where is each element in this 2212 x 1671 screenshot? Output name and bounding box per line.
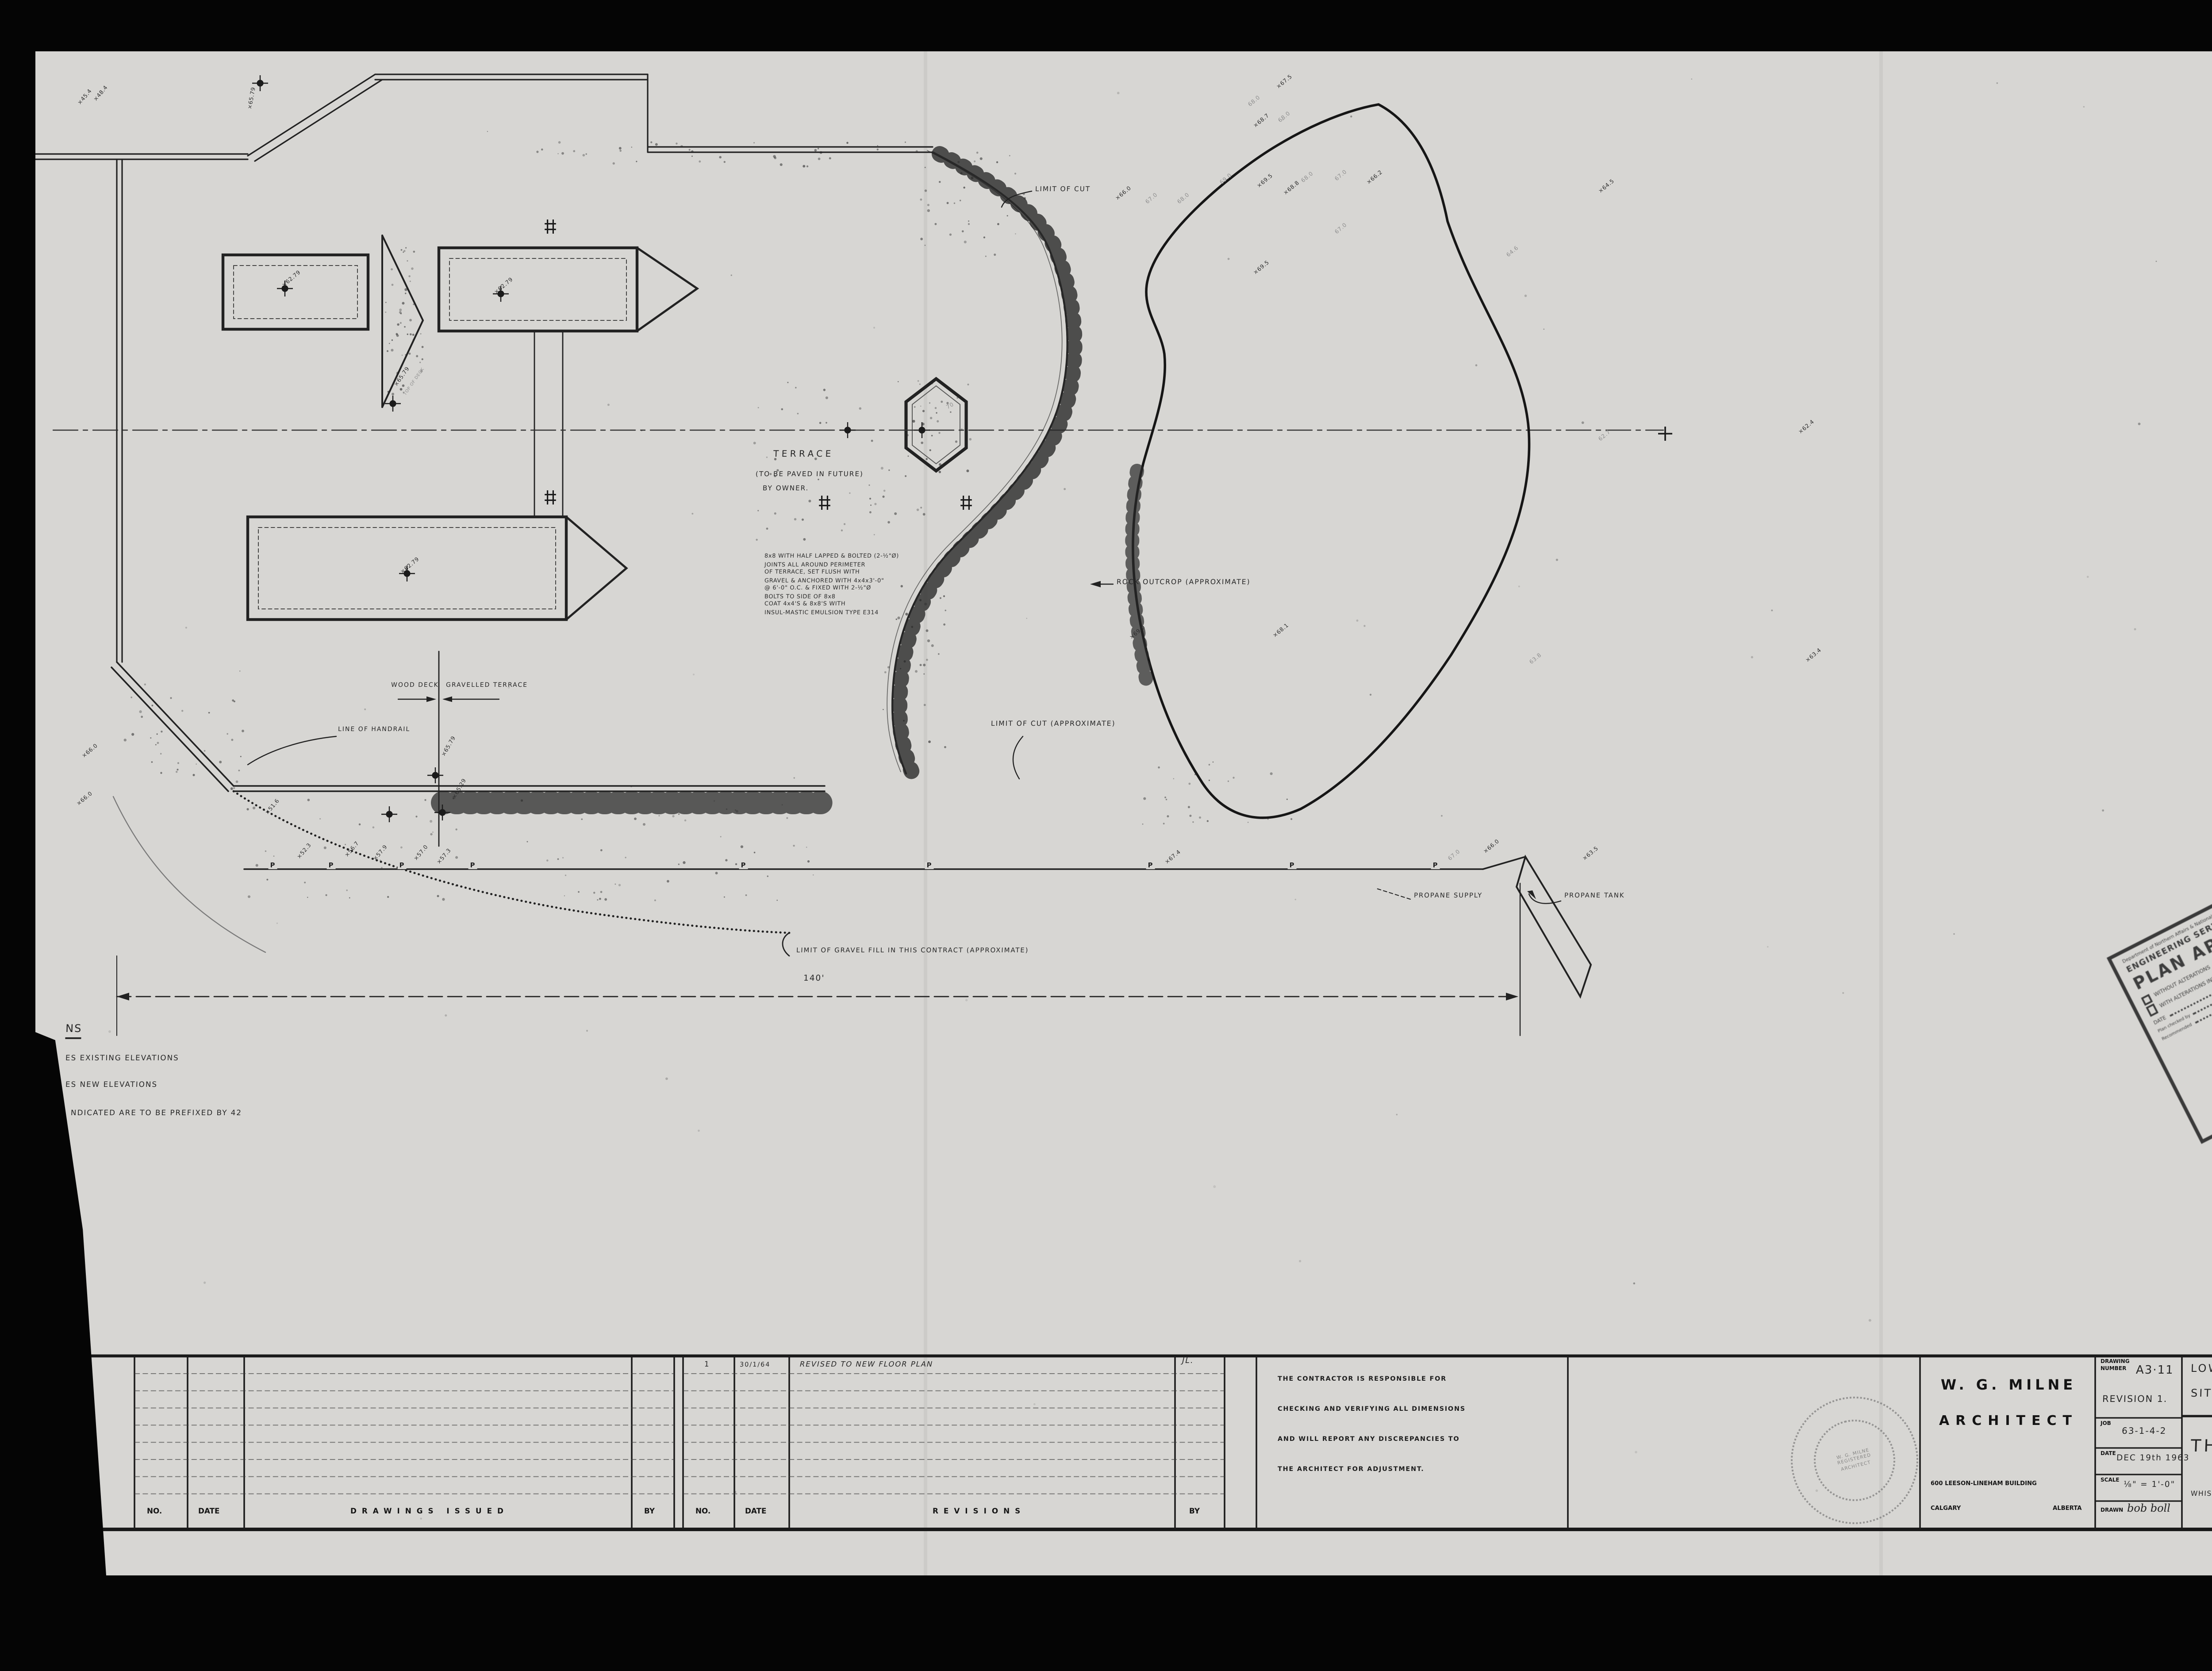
stipple-dot — [634, 817, 637, 820]
stipple-dot — [1228, 258, 1230, 260]
stipple-dot — [767, 875, 768, 877]
stipple-dot — [401, 249, 403, 251]
text-line: JOINTS ALL AROUND PERIMETER — [764, 560, 899, 568]
stipple-dot — [884, 671, 887, 674]
stipple-dot — [676, 142, 677, 144]
checkbox-icon — [2141, 993, 2154, 1005]
stipple-dot — [922, 410, 925, 412]
stipple-dot — [1767, 946, 1769, 948]
stipple-dot — [680, 145, 683, 148]
stipple-dot — [1158, 766, 1160, 769]
stipple-dot — [240, 756, 242, 757]
stipple-dot — [236, 780, 238, 783]
stipple-dot — [745, 894, 747, 896]
propane-line-p-marker: P — [1146, 862, 1155, 870]
stipple-dot — [971, 177, 973, 179]
stipple-dot — [1633, 1282, 1636, 1285]
stipple-dot — [819, 422, 822, 424]
stipple-dot — [432, 832, 433, 832]
drawn-signature: bob boll — [2127, 1503, 2170, 1515]
stipple-dot — [411, 267, 414, 270]
stipple-dot — [665, 1078, 668, 1080]
stipple-dot — [802, 519, 804, 521]
stipple-dot — [939, 463, 941, 466]
stipple-dot — [773, 155, 776, 158]
stipple-dot — [1194, 774, 1196, 775]
stipple-dot — [813, 874, 814, 876]
stipple-dot — [877, 149, 879, 150]
issued-by-header: BY — [644, 1506, 655, 1515]
stipple-dot — [1173, 778, 1175, 779]
stipple-dot — [787, 382, 788, 383]
stipple-dot — [924, 603, 927, 605]
stipple-dot — [936, 412, 937, 413]
text-line: COAT 4x4'S & 8x8'S WITH — [764, 600, 899, 608]
stipple-dot — [181, 710, 183, 712]
stipple-dot — [1582, 421, 1584, 424]
line-of-handrail-label: LINE OF HANDRAIL — [338, 726, 411, 733]
stipple-dot — [407, 334, 408, 335]
rock-outcrop-label: ROCK OUTCROP (APPROXIMATE) — [1117, 577, 1251, 586]
project-title: THE JASPER TRAM — [2190, 1437, 2212, 1457]
stipple-dot — [1192, 821, 1194, 823]
stipple-dot — [996, 161, 998, 163]
stipple-dot — [248, 895, 250, 898]
stipple-dot — [1188, 806, 1190, 808]
stipple-dot — [874, 534, 875, 535]
stipple-dot — [1163, 823, 1165, 824]
stipple-dot — [726, 809, 727, 810]
stipple-dot — [219, 761, 222, 763]
stipple-dot — [1228, 781, 1229, 782]
stipple-dot — [923, 674, 925, 675]
stipple-dot — [803, 538, 806, 541]
text-line: CHECKING AND VERIFYING ALL DIMENSIONS — [1278, 1395, 1466, 1425]
stipple-dot — [826, 397, 828, 399]
stipple-dot — [654, 899, 656, 901]
stipple-dot — [151, 705, 153, 706]
building-wing-c-point — [566, 517, 626, 620]
revisions-no-header: NO. — [695, 1506, 710, 1515]
stipple-dot — [405, 247, 407, 248]
sheet-title-line1: LOWER TERMINAL — [2191, 1363, 2212, 1375]
stipple-dot — [400, 847, 403, 849]
stipple-dot — [437, 895, 439, 897]
stipple-dot — [931, 382, 933, 384]
stipple-dot — [928, 740, 931, 743]
text-line: AND WILL REPORT ANY DISCREPANCIES TO — [1278, 1425, 1466, 1455]
stipple-dot — [422, 346, 424, 348]
gravel-fill-label: LIMIT OF GRAVEL FILL IN THIS CONTRACT (A… — [796, 947, 1029, 954]
stipple-dot — [1213, 1185, 1216, 1188]
stipple-dot — [797, 413, 799, 415]
stipple-dot — [586, 1030, 588, 1032]
stipple-dot — [967, 384, 969, 385]
stipple-dot — [720, 836, 722, 837]
stipple-dot — [204, 750, 206, 752]
stipple-dot — [246, 808, 249, 810]
stipple-dot — [131, 733, 134, 735]
stipple-dot — [776, 900, 778, 901]
stipple-dot — [914, 406, 916, 408]
wood-deck-label: WOOD DECK — [391, 681, 439, 689]
stipple-dot — [786, 817, 788, 819]
stipple-dot — [583, 154, 585, 157]
deck-south-edge — [234, 786, 825, 791]
stipple-dot — [870, 504, 872, 506]
stipple-dot — [641, 430, 642, 431]
stipple-dot — [413, 339, 415, 341]
stipple-dot — [346, 889, 347, 891]
stipple-dot — [956, 397, 958, 399]
stipple-dot — [941, 400, 943, 403]
revisions-title-header: REVISIONS — [933, 1506, 1025, 1515]
handrail-diagonal — [111, 662, 234, 791]
propane-line-p-marker: P — [327, 862, 335, 870]
stipple-dot — [265, 851, 267, 852]
stipple-dot — [403, 250, 406, 252]
stipple-dot — [937, 420, 939, 422]
stipple-dot — [619, 147, 622, 150]
stipple-dot — [2156, 261, 2157, 262]
stipple-dot — [1299, 1260, 1301, 1262]
stipple-dot — [943, 624, 945, 626]
stipple-dot — [658, 815, 660, 816]
stipple-dot — [691, 150, 693, 153]
drawing-number-value: A3·11 — [2135, 1363, 2174, 1377]
stipple-dot — [597, 899, 598, 901]
stipple-dot — [1350, 116, 1352, 118]
stipple-dot — [319, 818, 321, 820]
stipple-dot — [894, 512, 897, 515]
stipple-dot — [823, 389, 826, 391]
stipple-dot — [1356, 620, 1359, 622]
stipple-dot — [1270, 772, 1273, 775]
stipple-dot — [1209, 764, 1210, 766]
stipple-dot — [916, 150, 918, 152]
stipple-dot — [144, 683, 146, 685]
stipple-dot — [965, 999, 968, 1001]
stipple-dot — [599, 898, 601, 900]
stipple-dot — [160, 772, 162, 774]
text-line: THE CONTRACTOR IS RESPONSIBLE FOR — [1278, 1365, 1466, 1395]
stipple-dot — [242, 730, 244, 732]
contractor-disclaimer: THE CONTRACTOR IS RESPONSIBLE FORCHECKIN… — [1278, 1365, 1466, 1485]
stipple-dot — [385, 302, 387, 303]
stipple-dot — [399, 311, 402, 314]
stipple-dot — [918, 380, 919, 382]
terrace-note2: BY OWNER. — [763, 482, 809, 491]
stipple-dot — [818, 148, 819, 149]
stipple-dot — [920, 238, 923, 240]
stipple-dot — [625, 857, 626, 858]
propane-supply-label: PROPANE SUPPLY — [1414, 892, 1483, 899]
stipple-dot — [898, 381, 899, 382]
stipple-dot — [402, 302, 404, 304]
stipple-dot — [364, 708, 366, 710]
stipple-dot — [920, 199, 922, 201]
job-value: 63-1-4-2 — [2122, 1427, 2167, 1437]
stipple-dot — [983, 236, 985, 238]
stipple-dot — [814, 149, 817, 152]
stipple-dot — [266, 879, 268, 881]
stipple-dot — [325, 894, 327, 896]
arrow-to-divider-r — [442, 697, 452, 702]
limit-of-cut-label: LIMIT OF CUT — [1035, 184, 1091, 193]
stipple-dot — [619, 150, 622, 152]
propane-line-p-marker: P — [269, 862, 277, 870]
propane-tank-outline — [1517, 857, 1591, 997]
stipple-dot — [754, 852, 756, 854]
column-marker — [819, 496, 830, 510]
stipple-dot — [1164, 797, 1166, 798]
revision-entry-date: 30/1/64 — [740, 1360, 771, 1367]
stipple-dot — [934, 223, 937, 225]
stipple-dot — [527, 841, 528, 843]
microfilm-scan: TERRACE (TO BE PAVED IN FUTURE) BY OWNER… — [0, 0, 2212, 1671]
stipple-dot — [227, 733, 228, 735]
stipple-dot — [968, 220, 969, 222]
stipple-dot — [1014, 173, 1016, 174]
stipple-dot — [1751, 656, 1753, 658]
stipple-dot — [795, 387, 797, 389]
stipple-dot — [930, 417, 932, 419]
stipple-dot — [643, 823, 645, 826]
stipple-dot — [387, 350, 388, 352]
architect-province: ALBERTA — [2053, 1505, 2081, 1512]
stipple-dot — [404, 288, 407, 291]
stipple-dot — [954, 203, 955, 204]
stipple-dot — [389, 343, 390, 344]
stipple-dot — [561, 152, 564, 155]
text-line: 8x8 WITH HALF LAPPED & BOLTED (2-½"Ø) — [764, 552, 899, 560]
stipple-dot — [915, 670, 918, 673]
stipple-dot — [160, 753, 162, 755]
dim-arrow-right — [1506, 993, 1518, 1001]
stipple-dot — [950, 411, 951, 412]
stipple-dot — [735, 809, 737, 811]
stipple-dot — [871, 440, 873, 442]
stipple-dot — [1007, 215, 1008, 216]
stipple-dot — [392, 393, 394, 396]
stipple-dot — [905, 613, 908, 616]
stipple-dot — [307, 897, 308, 898]
stipple-dot — [600, 891, 603, 893]
stipple-dot — [557, 858, 559, 860]
building-wing-a — [223, 255, 368, 329]
stipple-dot — [1213, 762, 1214, 763]
stipple-dot — [614, 883, 616, 885]
stipple-dot — [719, 156, 721, 158]
sheet-title-line2: SITE PLAN — [2191, 1388, 2212, 1400]
stipple-dot — [618, 884, 621, 886]
issued-title-header: DRAWINGS ISSUED — [350, 1506, 509, 1515]
stipple-dot — [359, 824, 361, 826]
stipple-dot — [402, 354, 403, 356]
stipple-dot — [807, 860, 810, 862]
stipple-dot — [882, 496, 884, 498]
stipple-dot — [412, 334, 415, 336]
stipple-dot — [1286, 799, 1288, 800]
lower-left-contour — [113, 797, 265, 952]
stipple-dot — [416, 355, 418, 357]
stipple-dot — [581, 818, 583, 820]
stipple-dot — [304, 882, 306, 883]
stipple-dot — [667, 880, 669, 883]
stipple-dot — [698, 1130, 700, 1132]
stipple-dot — [1166, 799, 1167, 801]
stipple-dot — [923, 664, 926, 666]
stipple-dot — [691, 513, 693, 515]
stipple-dot — [392, 284, 394, 286]
stipple-dot — [920, 507, 922, 508]
stipple-dot — [919, 599, 922, 601]
stipple-dot — [974, 161, 975, 162]
stipple-dot — [896, 619, 897, 620]
stipple-dot — [960, 172, 962, 174]
stipple-dot — [969, 438, 972, 441]
stipple-dot — [818, 158, 821, 160]
stipple-dot — [557, 153, 558, 154]
stipple-dot — [859, 407, 862, 410]
stipple-dot — [945, 610, 946, 612]
stipple-dot — [901, 585, 903, 587]
stipple-dot — [231, 739, 233, 741]
stipple-dot — [766, 527, 768, 530]
stipple-dot — [2138, 423, 2141, 425]
stipple-dot — [808, 500, 811, 502]
stipple-dot — [442, 898, 445, 901]
stipple-dot — [1015, 233, 1016, 234]
stipple-dot — [756, 539, 757, 541]
stipple-dot — [900, 668, 901, 669]
rock-outcrop-boundary — [1133, 104, 1529, 818]
stipple-dot — [413, 304, 414, 305]
stipple-dot — [273, 855, 275, 857]
stipple-dot — [976, 152, 979, 154]
revisions-date-header: DATE — [745, 1506, 766, 1515]
limit-of-cut-approx-label: LIMIT OF CUT (APPROXIMATE) — [991, 719, 1116, 728]
stipple-dot — [1207, 820, 1209, 822]
stipple-dot — [573, 150, 575, 152]
stipple-dot — [806, 166, 808, 167]
stipple-dot — [233, 787, 235, 789]
stipple-dot — [968, 223, 970, 225]
stipple-dot — [920, 405, 921, 406]
stipple-dot — [895, 746, 896, 747]
stipple-dot — [963, 187, 965, 189]
stipple-dot — [407, 260, 408, 262]
scale-value: ⅛" = 1'-0" — [2124, 1481, 2176, 1490]
stipple-dot — [965, 443, 967, 445]
stipple-dot — [994, 254, 996, 256]
stipple-dot — [1544, 329, 1545, 330]
stipple-dot — [613, 162, 615, 165]
stipple-dot — [345, 844, 346, 845]
stipple-dot — [678, 863, 680, 865]
stipple-dot — [204, 1282, 206, 1284]
stipple-dot — [455, 828, 457, 830]
stipple-dot — [388, 391, 389, 393]
stipple-dot — [124, 739, 127, 741]
stipple-dot — [238, 770, 240, 771]
stipple-dot — [1370, 694, 1371, 696]
stipple-dot — [927, 639, 930, 642]
job-label: JOB — [2101, 1420, 2111, 1427]
stipple-dot — [650, 141, 652, 143]
stipple-dot — [565, 874, 566, 876]
stipple-dot — [734, 1491, 737, 1494]
stipple-dot — [399, 308, 402, 311]
stipple-dot — [157, 742, 159, 744]
revisions-by-header: BY — [1189, 1506, 1200, 1515]
stipple-dot — [1294, 899, 1296, 901]
stipple-dot — [196, 763, 197, 765]
stipple-dot — [887, 666, 890, 668]
tower-base-hexagon — [906, 379, 966, 471]
stipple-dot — [324, 847, 326, 849]
tower-base-hexagon-inner — [912, 386, 960, 464]
stipple-dot — [177, 769, 179, 770]
stipple-dot — [820, 151, 822, 154]
stipple-dot — [1771, 609, 1773, 611]
stipple-dot — [521, 799, 523, 801]
issued-no-header: NO. — [147, 1506, 162, 1515]
revision-entry-by: JL. — [1182, 1358, 1194, 1367]
stipple-dot — [940, 597, 941, 599]
stipple-dot — [655, 143, 658, 146]
stipple-dot — [961, 428, 963, 430]
stipple-dot — [849, 492, 851, 494]
stipple-dot — [906, 434, 909, 436]
revision-entry-no: 1 — [704, 1359, 710, 1368]
stipple-dot — [380, 860, 381, 861]
stipple-dot — [1142, 824, 1144, 825]
stipple-dot — [724, 161, 726, 163]
stipple-dot — [666, 152, 668, 153]
construction-note: 8x8 WITH HALF LAPPED & BOLTED (2-½"Ø)JOI… — [764, 552, 899, 616]
stipple-dot — [541, 149, 543, 151]
terrace-note1: (TO BE PAVED IN FUTURE) — [756, 469, 864, 478]
stipple-dot — [276, 923, 278, 924]
legend-existing: ES EXISTING ELEVATIONS — [65, 1053, 179, 1062]
stipple-dot — [960, 200, 961, 201]
stipple-dot — [585, 153, 587, 154]
column-marker — [960, 496, 972, 510]
stipple-dot — [253, 807, 255, 809]
deck-west-edge — [117, 159, 122, 662]
project-location: WHISTLER MOUNTAIN · JASPER, ALTA. — [2191, 1489, 2212, 1498]
stipple-dot — [691, 156, 693, 157]
stipple-dot — [966, 470, 969, 472]
stipple-dot — [1024, 197, 1026, 199]
architect-name: W. G. MILNE — [1934, 1377, 2083, 1393]
stipple-dot — [844, 523, 845, 525]
stipple-dot — [1199, 816, 1201, 819]
stipple-dot — [604, 898, 607, 901]
stipple-dot — [947, 202, 949, 204]
stipple-dot — [445, 1014, 447, 1016]
stipple-dot — [905, 475, 906, 477]
stipple-dot — [636, 161, 637, 162]
stipple-dot — [239, 670, 241, 672]
stipple-dot — [192, 774, 195, 776]
stipple-dot — [2087, 576, 2089, 578]
stipple-dot — [155, 744, 157, 745]
stipple-dot — [922, 423, 924, 425]
stipple-dot — [536, 151, 538, 153]
stipple-dot — [2134, 628, 2136, 630]
